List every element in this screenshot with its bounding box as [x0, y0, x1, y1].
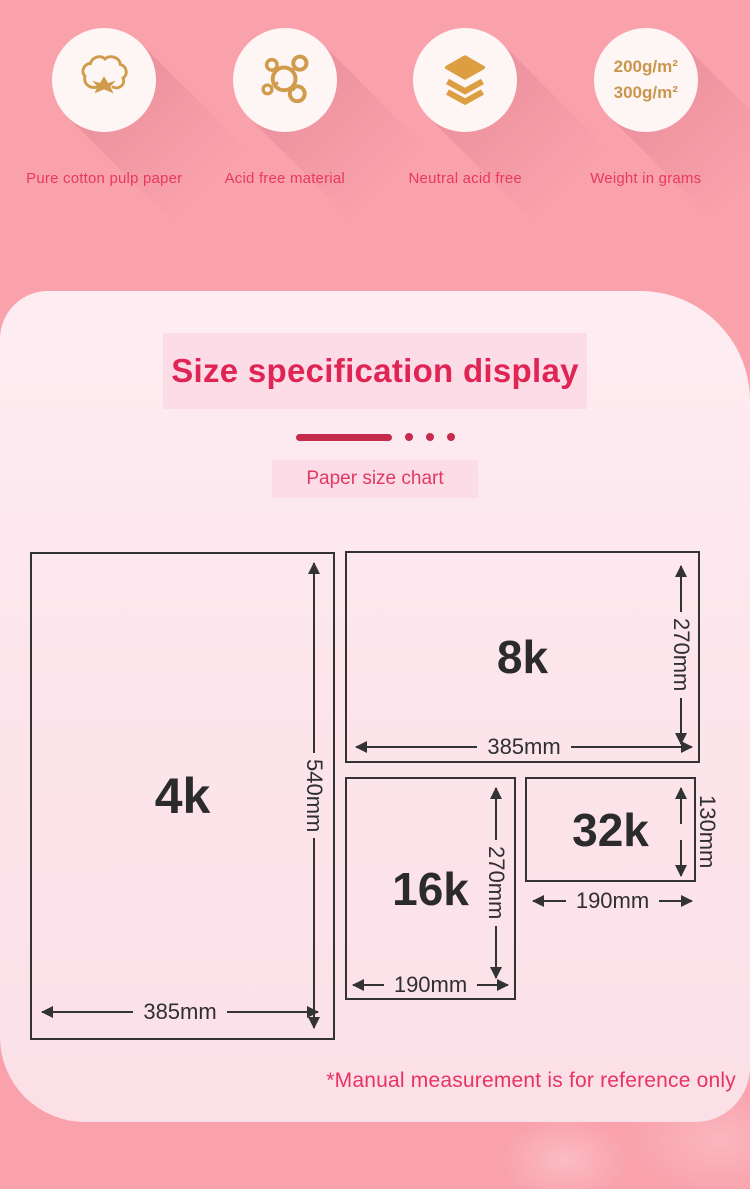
layers-icon [437, 50, 493, 111]
arrow-up-icon [313, 563, 315, 753]
arrow-up-icon [495, 788, 497, 840]
arrow-left-icon [353, 984, 384, 986]
feature-circle [413, 28, 517, 132]
cotton-icon [75, 49, 133, 112]
arrow-down-icon [680, 840, 682, 876]
paper-size-name: 16k [392, 862, 469, 916]
dim-label: 130mm [696, 795, 718, 868]
paper-size-name: 8k [497, 630, 548, 684]
dim-4k-width: 385mm [42, 997, 318, 1027]
arrow-right-icon [571, 746, 692, 748]
arrow-left-icon [42, 1011, 133, 1013]
dim-label: 190mm [384, 972, 477, 998]
divider-dot [447, 433, 455, 441]
dim-label: 190mm [566, 888, 659, 914]
weight-value-300: 300g/m² [614, 80, 678, 106]
dim-32k-height-arrow [666, 788, 696, 876]
arrow-left-icon [356, 746, 477, 748]
feature-label: Pure cotton pulp paper [14, 170, 195, 187]
title-banner: Size specification display [163, 333, 587, 409]
feature-circle [233, 28, 337, 132]
arrow-up-icon [680, 566, 682, 612]
arrow-right-icon [477, 984, 508, 986]
dim-32k-height-label-wrap: 130mm [696, 788, 718, 876]
dim-label: 385mm [477, 734, 570, 760]
dim-label: 270mm [670, 618, 692, 691]
dim-16k-width: 190mm [353, 970, 508, 1000]
feature-row: Pure cotton pulp paper [0, 0, 750, 187]
molecule-icon [257, 50, 313, 111]
weight-circle: 200g/m² 300g/m² [594, 28, 698, 132]
feature-circle [52, 28, 156, 132]
dim-label: 385mm [133, 999, 226, 1025]
arrow-right-icon [227, 1011, 318, 1013]
section-title: Size specification display [163, 352, 587, 390]
dim-label: 540mm [303, 759, 325, 832]
divider-line [296, 434, 392, 441]
arrow-left-icon [533, 900, 566, 902]
feature-acid-free: Acid free material [195, 28, 376, 187]
paper-size-name: 32k [572, 803, 649, 857]
feature-neutral-acid: Neutral acid free [375, 28, 556, 187]
feature-label: Weight in grams [556, 170, 737, 187]
divider-dot [405, 433, 413, 441]
feature-pure-cotton: Pure cotton pulp paper [14, 28, 195, 187]
arrow-up-icon [680, 788, 682, 824]
measurement-note: *Manual measurement is for reference onl… [326, 1069, 736, 1093]
size-specification-panel: Size specification display Paper size ch… [0, 291, 750, 1122]
feature-label: Neutral acid free [375, 170, 556, 187]
chart-label: Paper size chart [272, 460, 478, 498]
feature-weight: 200g/m² 300g/m² Weight in grams [556, 28, 737, 187]
dim-16k-height: 270mm [481, 788, 511, 978]
dim-4k-height: 540mm [299, 563, 329, 1028]
product-infographic: Pure cotton pulp paper [0, 0, 750, 1189]
feature-label: Acid free material [195, 170, 376, 187]
weight-value-200: 200g/m² [614, 54, 678, 80]
title-divider [0, 433, 750, 441]
dim-32k-width: 190mm [533, 886, 692, 916]
dim-8k-height: 270mm [666, 566, 696, 744]
paper-size-name: 4k [155, 767, 211, 825]
arrow-right-icon [659, 900, 692, 902]
paper-rect-4k: 4k [30, 552, 335, 1040]
dim-8k-width: 385mm [356, 732, 692, 762]
dim-label: 270mm [485, 846, 507, 919]
divider-dot [426, 433, 434, 441]
